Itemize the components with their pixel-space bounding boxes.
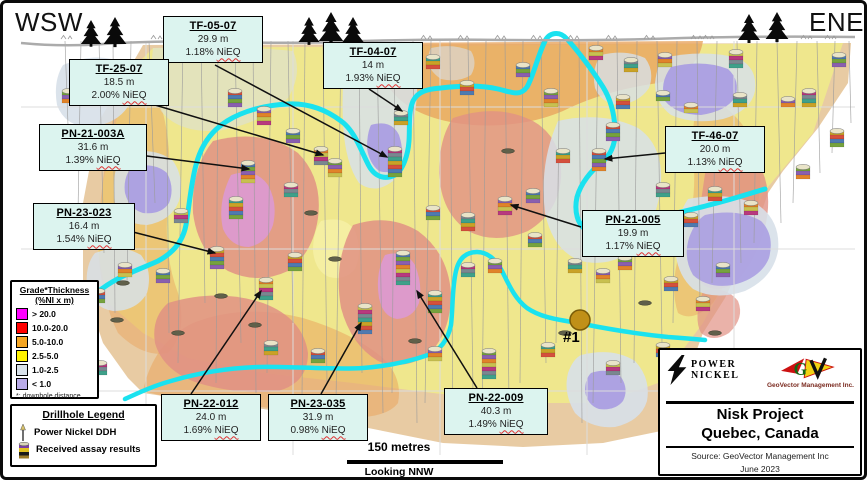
callout-title: PN-22-009: [448, 391, 544, 405]
divider: [666, 446, 854, 448]
callout-depth: 20.0 m: [669, 143, 761, 156]
callout-depth: 24.0 m: [165, 411, 257, 424]
callout-pn-23-023: PN-23-023 16.4 m 1.54% NiEQ: [33, 203, 135, 250]
date-note: June 2023: [664, 464, 856, 474]
callout-pn-23-035: PN-23-035 31.9 m 0.98% NiEQ: [268, 394, 368, 441]
source-note: Source: GeoVector Management Inc: [664, 451, 856, 461]
callout-grade: 1.49% NiEQ: [448, 418, 544, 431]
callout-depth: 14 m: [327, 59, 419, 72]
callout-title: PN-23-023: [37, 206, 131, 220]
grade-range-label: 10.0-20.0: [32, 323, 68, 333]
callout-depth: 31.6 m: [43, 141, 143, 154]
grade-range-label: 5.0-10.0: [32, 337, 63, 347]
callout-title: PN-22-012: [165, 397, 257, 411]
color-swatch: [16, 322, 28, 334]
grade-legend-title: Grade*Thickness: [16, 285, 93, 295]
drillhole-legend: Drillhole Legend Power Nickel DDH Receiv…: [10, 404, 157, 467]
svg-text:G: G: [794, 359, 808, 379]
callout-tf-04-07: TF-04-07 14 m 1.93% NiEQ: [323, 42, 423, 89]
color-swatch: [16, 336, 28, 348]
color-swatch: [16, 364, 28, 376]
color-swatch: [16, 350, 28, 362]
grade-legend-item: 1.0-2.5: [16, 364, 93, 376]
color-swatch: [16, 308, 28, 320]
callout-tf-25-07: TF-25-07 18.5 m 2.00% NiEQ: [69, 59, 169, 106]
compass-wsw: WSW: [15, 7, 83, 38]
drillhole-legend-row: Received assay results: [17, 441, 150, 458]
callout-depth: 29.9 m: [167, 33, 259, 46]
grade-legend-footnote: *: downhole distance: [16, 393, 93, 400]
callout-pn-21-005: PN-21-005 19.9 m 1.17% NiEQ: [582, 210, 684, 257]
grade-legend-item: > 20.0: [16, 308, 93, 320]
pit-label: #1: [563, 329, 580, 346]
view-direction: Looking NNW: [339, 466, 459, 478]
callout-grade: 1.17% NiEQ: [586, 240, 680, 253]
callout-title: TF-05-07: [167, 19, 259, 33]
title-block: POWER NICKEL G GeoVector Management Inc.…: [658, 348, 862, 476]
callout-depth: 40.3 m: [448, 405, 544, 418]
grade-legend-item: 2.5-5.0: [16, 350, 93, 362]
callout-tf-05-07: TF-05-07 29.9 m 1.18% NiEQ: [163, 16, 263, 63]
callout-grade: 2.00% NiEQ: [73, 89, 165, 102]
drillhole-legend-row: Power Nickel DDH: [17, 424, 150, 441]
assay-cylinder-icon: [17, 441, 31, 459]
grade-thickness-legend: Grade*Thickness (%NI x m) > 20.010.0-20.…: [10, 280, 99, 399]
grade-range-label: > 20.0: [32, 309, 56, 319]
geovector-mark-icon: G: [781, 355, 839, 381]
callout-grade: 1.54% NiEQ: [37, 233, 131, 246]
section-figure: WSW ENE TF-05-07 29.9 m 1.18% NiEQ TF-25…: [0, 0, 867, 480]
grade-legend-item: < 1.0: [16, 378, 93, 390]
grade-range-label: < 1.0: [32, 379, 51, 389]
callout-title: TF-25-07: [73, 62, 165, 76]
callout-title: PN-21-003A: [43, 127, 143, 141]
grade-legend-items: > 20.010.0-20.05.0-10.02.5-5.01.0-2.5< 1…: [16, 308, 93, 390]
callout-grade: 1.39% NiEQ: [43, 154, 143, 167]
grade-range-label: 2.5-5.0: [32, 351, 58, 361]
geovector-logo: G GeoVector Management Inc.: [767, 355, 854, 389]
scale-bar: [347, 460, 503, 464]
callout-pn-22-009: PN-22-009 40.3 m 1.49% NiEQ: [444, 388, 548, 435]
callout-depth: 31.9 m: [272, 411, 364, 424]
callout-grade: 1.93% NiEQ: [327, 72, 419, 85]
grade-legend-item: 10.0-20.0: [16, 322, 93, 334]
project-name: Nisk Project: [664, 406, 856, 425]
lightning-bolt-icon: [666, 355, 688, 385]
divider: [666, 401, 854, 404]
grade-legend-item: 5.0-10.0: [16, 336, 93, 348]
power-nickel-logo: POWER NICKEL: [666, 355, 739, 385]
drillhole-legend-title: Drillhole Legend: [17, 409, 150, 421]
callout-depth: 18.5 m: [73, 76, 165, 89]
callout-pn-22-012: PN-22-012 24.0 m 1.69% NiEQ: [161, 394, 261, 441]
pit-marker: [570, 310, 590, 330]
grade-range-label: 1.0-2.5: [32, 365, 58, 375]
callout-title: TF-46-07: [669, 129, 761, 143]
ddh-needle-icon: [17, 424, 29, 442]
callout-grade: 1.69% NiEQ: [165, 424, 257, 437]
scale-distance: 150 metres: [339, 440, 459, 454]
callout-depth: 16.4 m: [37, 220, 131, 233]
project-location: Quebec, Canada: [664, 425, 856, 444]
callout-grade: 0.98% NiEQ: [272, 424, 364, 437]
callout-title: TF-04-07: [327, 45, 419, 59]
compass-ene: ENE: [809, 7, 864, 38]
callout-grade: 1.13% NiEQ: [669, 156, 761, 169]
callout-grade: 1.18% NiEQ: [167, 46, 259, 59]
callout-title: PN-23-035: [272, 397, 364, 411]
callout-tf-46-07: TF-46-07 20.0 m 1.13% NiEQ: [665, 126, 765, 173]
grade-legend-subtitle: (%NI x m): [16, 295, 93, 305]
callout-pn-21-003a: PN-21-003A 31.6 m 1.39% NiEQ: [39, 124, 147, 171]
color-swatch: [16, 378, 28, 390]
callout-depth: 19.9 m: [586, 227, 680, 240]
callout-title: PN-21-005: [586, 213, 680, 227]
